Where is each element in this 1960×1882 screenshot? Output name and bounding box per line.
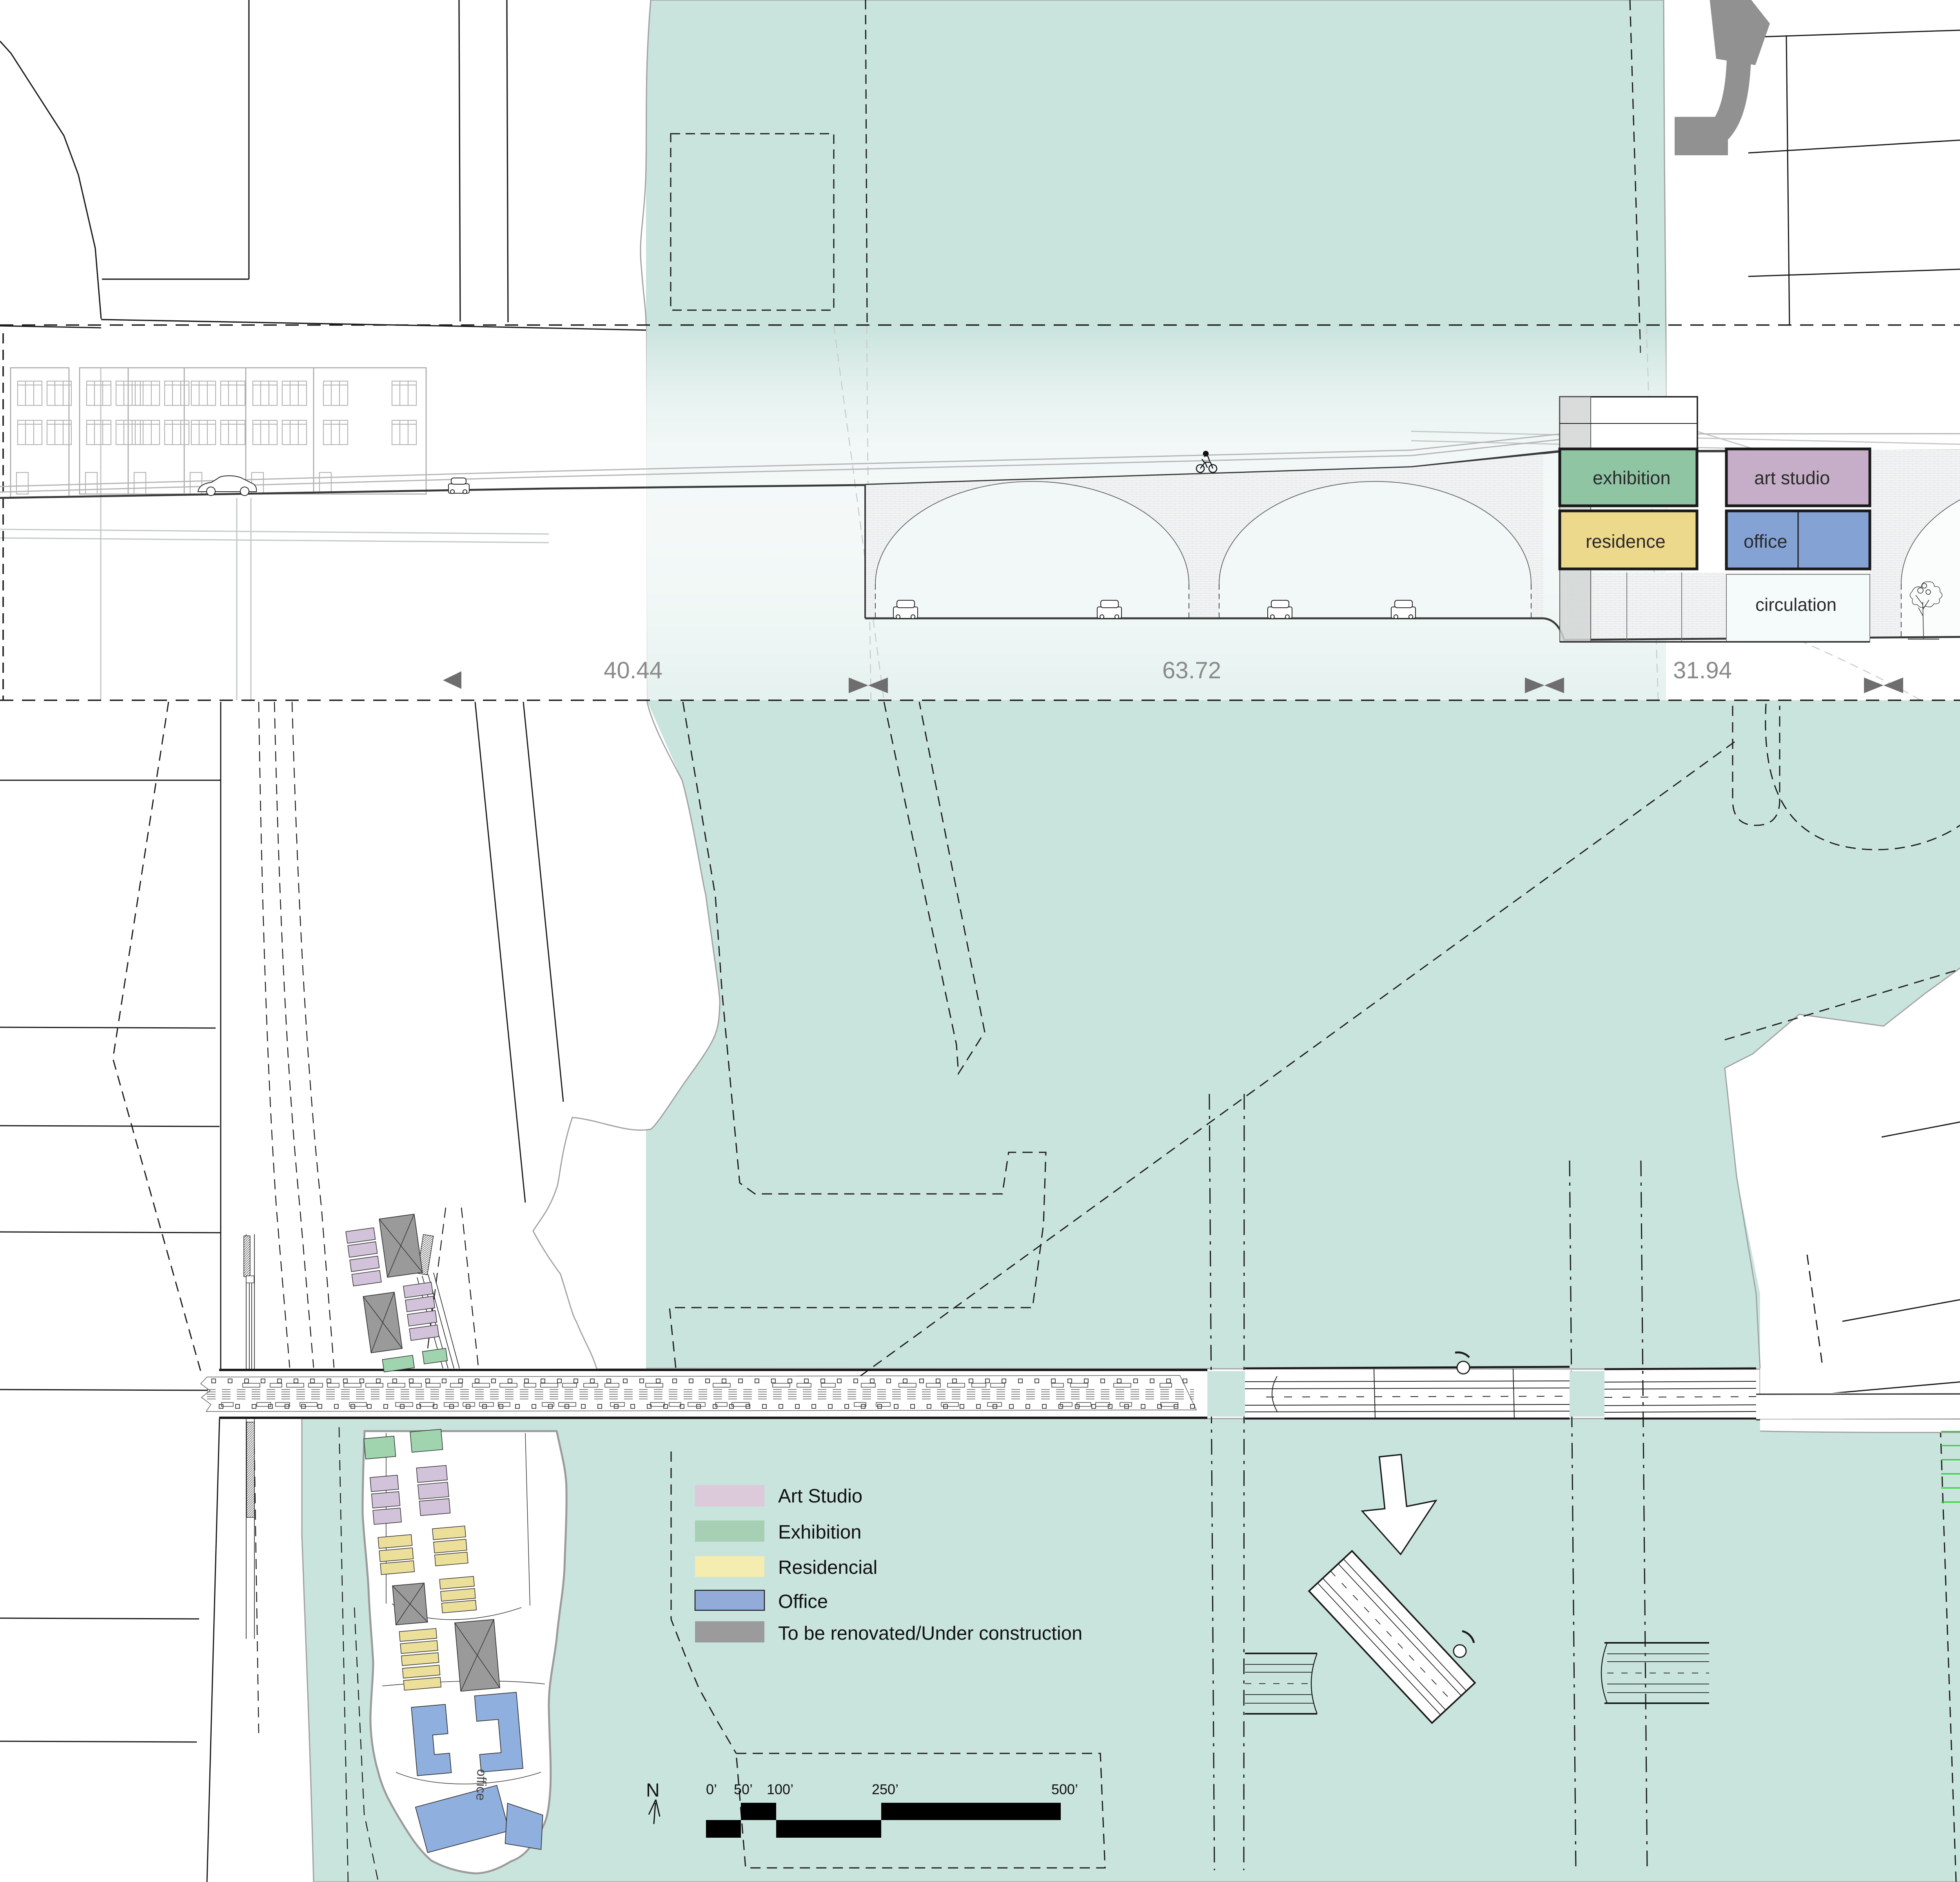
svg-text:art studio: art studio <box>1754 467 1830 488</box>
svg-text:Office: Office <box>778 1591 828 1612</box>
svg-text:63.72: 63.72 <box>1162 657 1221 683</box>
svg-text:Exhibition: Exhibition <box>778 1522 861 1543</box>
svg-text:exhibition: exhibition <box>1593 467 1671 488</box>
svg-text:office: office <box>1744 531 1788 552</box>
svg-text:circulation: circulation <box>1755 594 1837 615</box>
svg-text:Art Studio: Art Studio <box>778 1486 862 1507</box>
svg-text:office: office <box>473 1769 489 1801</box>
svg-text:residence: residence <box>1586 531 1666 552</box>
svg-text:31.94: 31.94 <box>1673 657 1732 683</box>
svg-text:Residencial: Residencial <box>778 1557 877 1578</box>
svg-text:40.44: 40.44 <box>604 657 662 683</box>
svg-text:100’: 100’ <box>767 1781 793 1797</box>
svg-text:250’: 250’ <box>872 1781 898 1797</box>
svg-text:50’: 50’ <box>734 1781 753 1797</box>
svg-text:0’: 0’ <box>706 1781 717 1797</box>
svg-text:To be renovated/Under construc: To be renovated/Under construction <box>778 1623 1082 1644</box>
svg-text:500’: 500’ <box>1051 1781 1078 1797</box>
svg-text:N: N <box>646 1780 660 1801</box>
